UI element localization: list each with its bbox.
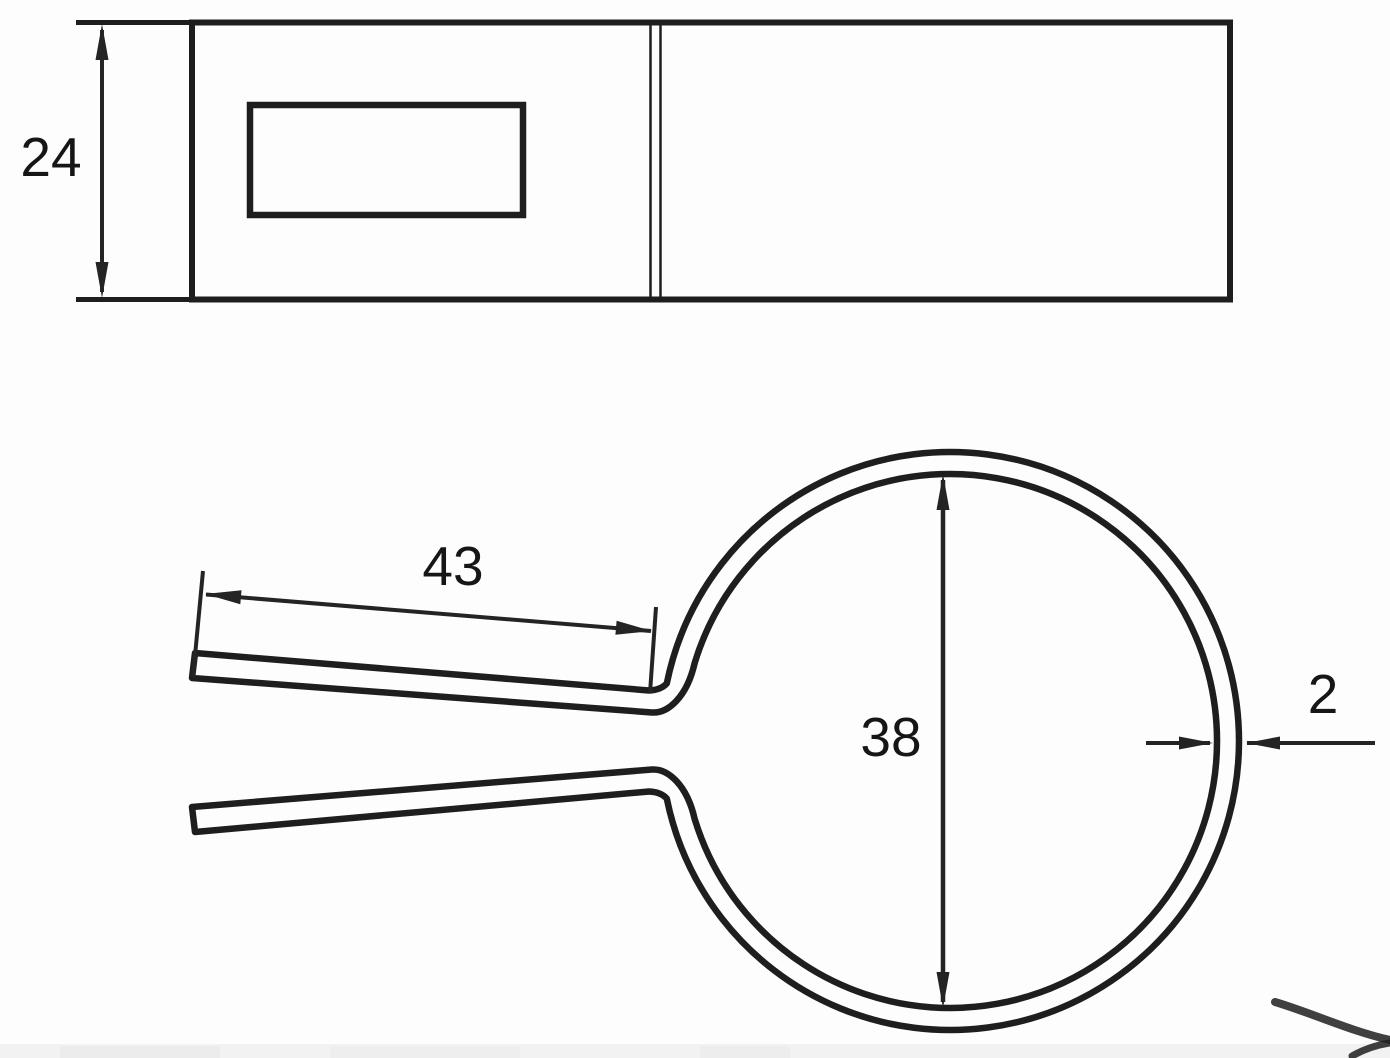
- arrowhead-up-icon: [96, 24, 109, 60]
- clamp-band-outline: [192, 452, 1239, 1030]
- scan-smudge: [330, 1046, 520, 1058]
- technical-drawing-svg: 24 43 38 2: [0, 0, 1390, 1058]
- slot-cutout: [250, 105, 523, 215]
- cropped-corner-arc: [1275, 1002, 1390, 1040]
- arrowhead-left-icon: [1246, 737, 1280, 750]
- arrowhead-down-icon: [96, 262, 109, 298]
- dim-label-arm-length: 43: [422, 535, 483, 597]
- dim-wall-thickness: 2: [1146, 663, 1375, 750]
- dim-inner-diameter: 38: [860, 474, 949, 1008]
- dimension-line: [206, 595, 651, 632]
- arrowhead-up-icon: [937, 474, 950, 510]
- scan-smudge: [700, 1046, 790, 1058]
- arrowhead-left-icon: [205, 590, 242, 604]
- extension-line-right: [650, 607, 656, 693]
- dim-label-inner-diameter: 38: [860, 706, 921, 768]
- side-view: 43 38 2: [192, 452, 1375, 1030]
- scan-smudge: [60, 1046, 220, 1058]
- dim-label-strip-width: 24: [20, 126, 81, 188]
- drawing-canvas: 24 43 38 2: [0, 0, 1390, 1058]
- dim-strip-width: 24: [20, 24, 108, 298]
- extension-line-left: [193, 571, 203, 677]
- strip-outline: [192, 23, 1230, 300]
- arrowhead-down-icon: [937, 972, 950, 1008]
- dim-label-wall-thickness: 2: [1308, 663, 1339, 725]
- top-view: 24: [20, 23, 1230, 300]
- scan-artifacts: [0, 1002, 1390, 1058]
- arrowhead-right-icon: [1179, 737, 1213, 750]
- arrowhead-right-icon: [615, 621, 652, 635]
